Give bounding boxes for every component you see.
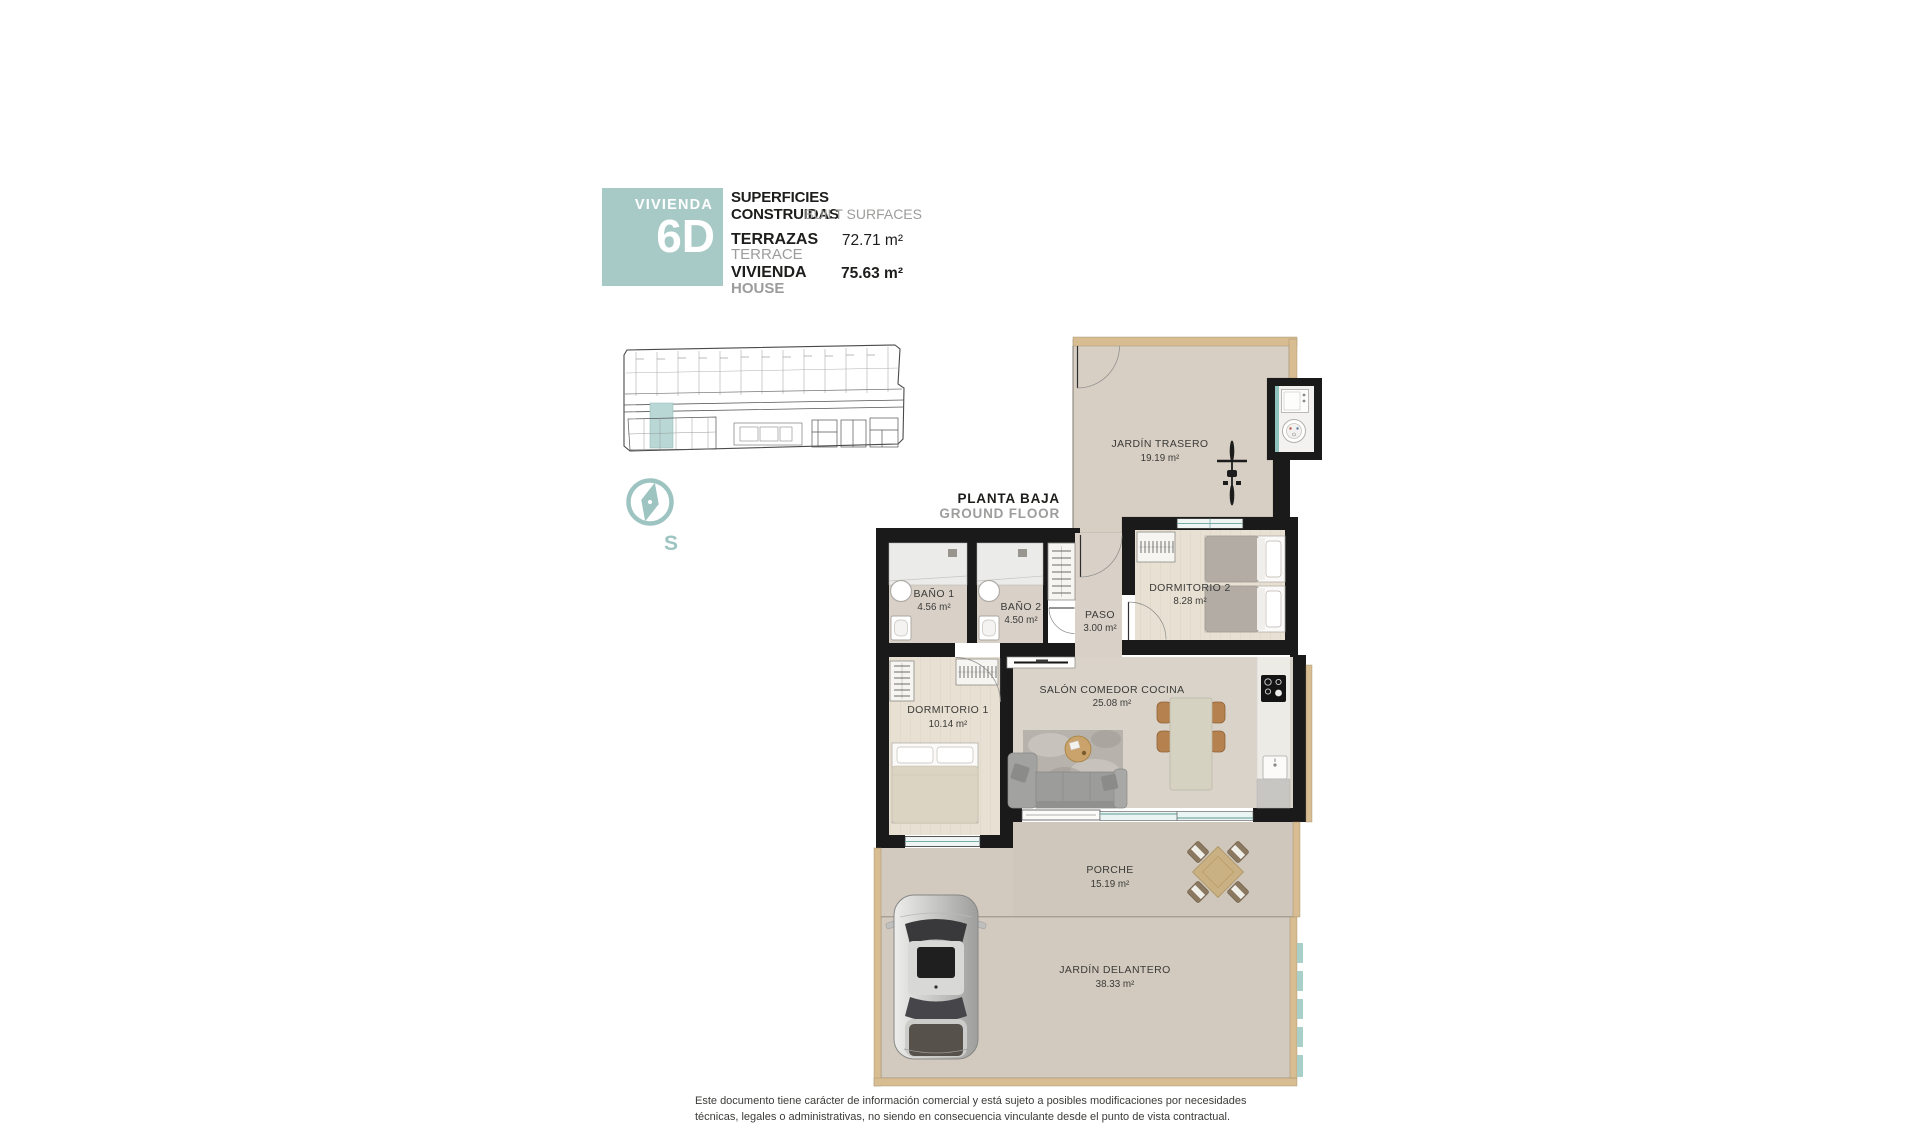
hallway-paso: PASO 3.00 m² <box>1048 533 1122 657</box>
room-area-bano1: 4.56 m² <box>917 602 951 613</box>
hall-closet <box>1048 543 1075 600</box>
double-bed <box>892 743 978 823</box>
bathroom-1: BAÑO 1 4.56 m² <box>889 543 967 643</box>
garden-tan-border-left <box>874 848 881 1086</box>
single-bed-1 <box>1205 536 1285 582</box>
bedroom2-closet <box>1137 532 1175 562</box>
back-garden: JARDÍN TRASERO 19.19 m² <box>1073 337 1297 533</box>
room-label-salon: SALÓN COMEDOR COCINA <box>1039 683 1184 696</box>
bathroom-2: BAÑO 2 4.50 m² <box>977 543 1043 643</box>
legal-disclaimer: Este documento tiene carácter de informa… <box>695 1094 1260 1126</box>
bedroom-1: DORMITORIO 1 10.14 m² <box>889 657 1001 835</box>
room-label-jardin-trasero: JARDÍN TRASERO <box>1111 437 1208 450</box>
hedge-strip <box>1297 943 1303 1077</box>
utility-room <box>1267 378 1322 460</box>
dining-table <box>1170 698 1212 790</box>
coffee-table <box>1065 736 1091 762</box>
room-area-porche: 15.19 m² <box>1091 879 1130 890</box>
surfaces-title-en: BUILT SURFACES <box>731 206 922 222</box>
compass-icon: S <box>612 472 697 557</box>
room-label-jardin-delantero: JARDÍN DELANTERO <box>1059 963 1170 976</box>
shower-head-1 <box>948 549 957 557</box>
disclaimer-line-1: Este documento tiene carácter de informa… <box>695 1094 1260 1110</box>
washing-machine-icon <box>1282 390 1309 413</box>
bedroom1-closet-left <box>890 661 914 701</box>
floor-plan: JARDÍN TRASERO 19.19 m² <box>860 325 1335 1095</box>
bedroom1-window <box>905 837 980 847</box>
room-area-paso: 3.00 m² <box>1083 623 1117 634</box>
bedroom2-window <box>1177 519 1243 529</box>
unit-number: 6D <box>602 213 723 259</box>
terrace-value: 72.71 m² <box>760 232 903 250</box>
sink-2 <box>979 581 1000 602</box>
car-top-view <box>885 895 986 1059</box>
sink-1 <box>891 581 912 602</box>
tv-console <box>1007 657 1075 668</box>
compass-south-letter: S <box>664 532 678 555</box>
bedroom-2: DORMITORIO 2 8.28 m² <box>1129 530 1286 640</box>
outdoor-dining-set <box>1187 841 1250 904</box>
site-plan-highlight-unit <box>650 403 673 448</box>
room-label-dormitorio2: DORMITORIO 2 <box>1149 582 1231 594</box>
living-dining-kitchen: SALÓN COMEDOR COCINA 25.08 m² <box>1007 657 1293 808</box>
toilet-1 <box>891 616 911 640</box>
room-area-dormitorio2: 8.28 m² <box>1173 596 1207 607</box>
garden-tan-border-right <box>1289 339 1297 378</box>
salon-window <box>1022 810 1100 820</box>
room-label-paso: PASO <box>1085 609 1115 621</box>
bathroom2-door <box>1049 608 1075 634</box>
shower-head-2 <box>1018 549 1027 557</box>
room-label-porche: PORCHE <box>1086 864 1133 876</box>
room-area-bano2: 4.50 m² <box>1004 615 1038 626</box>
house-value: 75.63 m² <box>760 265 903 283</box>
utility-glass-strip <box>1275 386 1279 452</box>
unit-badge: VIVIENDA 6D <box>602 188 723 286</box>
room-area-salon: 25.08 m² <box>1093 698 1132 709</box>
room-area-jardin-trasero: 19.19 m² <box>1141 453 1180 464</box>
toilet-2 <box>979 616 999 640</box>
garden-tan-border-bottom <box>874 1078 1297 1086</box>
boiler-icon <box>1283 420 1306 443</box>
room-area-jardin-delantero: 38.33 m² <box>1096 979 1135 990</box>
garden-tan-border-top <box>1073 337 1297 346</box>
salon-sliding-door <box>1100 812 1253 821</box>
room-label-dormitorio1: DORMITORIO 1 <box>907 704 989 716</box>
floorplan-sheet: VIVIENDA 6D SUPERFICIES CONSTRUIDAS BUIL… <box>0 0 1920 1140</box>
room-label-bano1: BAÑO 1 <box>914 587 955 600</box>
disclaimer-line-2: técnicas, legales o administrativas, no … <box>695 1110 1260 1126</box>
room-area-dormitorio1: 10.14 m² <box>929 719 968 730</box>
room-label-bano2: BAÑO 2 <box>1001 600 1042 613</box>
kitchen-sink <box>1263 756 1287 779</box>
compass-needle <box>636 480 663 523</box>
fridge-counter <box>1257 779 1290 808</box>
cooktop-icon <box>1261 675 1286 702</box>
